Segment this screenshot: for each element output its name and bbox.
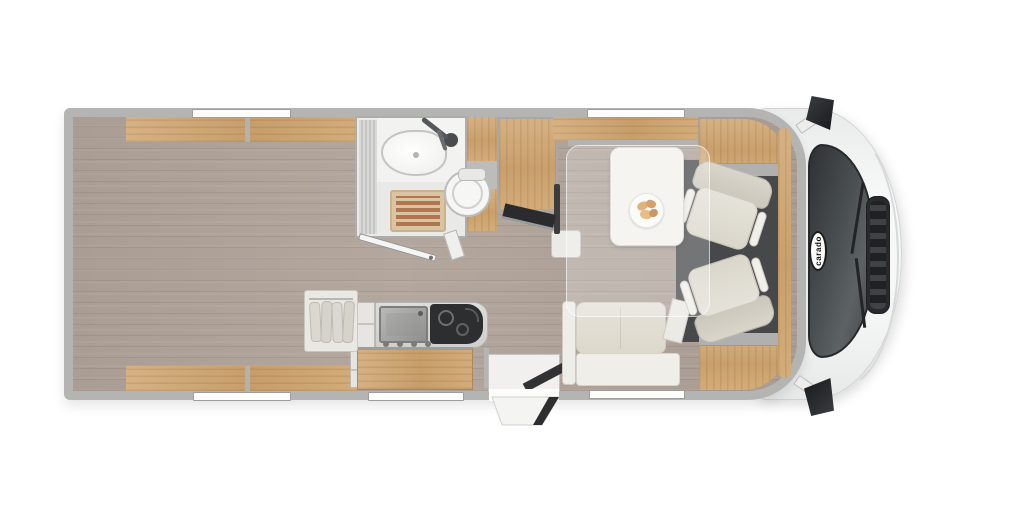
burner-icon xyxy=(438,310,454,326)
bathroom-side-cabinet-top xyxy=(467,117,497,161)
exterior-entry-step xyxy=(486,396,566,428)
brand-badge: carado xyxy=(809,231,827,271)
tall-cabinet-fridge xyxy=(497,117,558,211)
kitchen-drawer-front xyxy=(357,347,473,390)
window-top-dinette xyxy=(587,109,685,118)
sink-faucet-icon xyxy=(418,311,423,316)
brand-badge-text: carado xyxy=(814,236,823,266)
dashboard-wood-strip xyxy=(778,128,791,378)
knob-icon xyxy=(383,341,389,347)
grille-slats xyxy=(870,201,886,309)
washbasin xyxy=(381,130,447,176)
dinette-overhead-shelf xyxy=(553,117,698,141)
wardrobe xyxy=(304,290,358,352)
window-top-rear xyxy=(192,109,291,118)
burner-icon xyxy=(456,323,469,336)
toilet-seat-ring xyxy=(452,178,483,209)
floor-plan-scene: carado xyxy=(0,0,1024,509)
drain-icon xyxy=(413,152,419,158)
shower-mat xyxy=(390,190,446,232)
shower-wall-panel xyxy=(359,120,377,234)
bench-backrest xyxy=(576,353,680,386)
knob-icon xyxy=(425,341,431,347)
shower-mat-slats xyxy=(396,196,440,226)
hob-glass-edge xyxy=(465,308,479,322)
hanger-rail xyxy=(309,298,353,300)
hob-knob-row xyxy=(383,341,445,347)
drop-down-bed-outline xyxy=(566,145,710,317)
two-burner-hob xyxy=(430,304,483,344)
shelf-divider xyxy=(245,366,250,391)
tv-bracket xyxy=(554,184,560,234)
sink-basin xyxy=(386,313,421,336)
toilet xyxy=(444,170,491,217)
shelf-divider xyxy=(245,117,250,142)
kitchen-sink xyxy=(379,306,428,343)
knob-icon xyxy=(411,341,417,347)
hanger-icon xyxy=(342,301,355,344)
knob-icon xyxy=(397,341,403,347)
overhead-shelf-top xyxy=(126,117,358,142)
toilet-lid-hinge xyxy=(458,168,486,181)
front-grille xyxy=(866,196,890,314)
door-handle-icon xyxy=(428,255,433,260)
overhead-shelf-bottom xyxy=(126,366,358,391)
window-bottom-dinette xyxy=(589,390,685,399)
window-bottom-kitchen xyxy=(368,392,464,401)
window-bottom-rear xyxy=(193,392,291,401)
